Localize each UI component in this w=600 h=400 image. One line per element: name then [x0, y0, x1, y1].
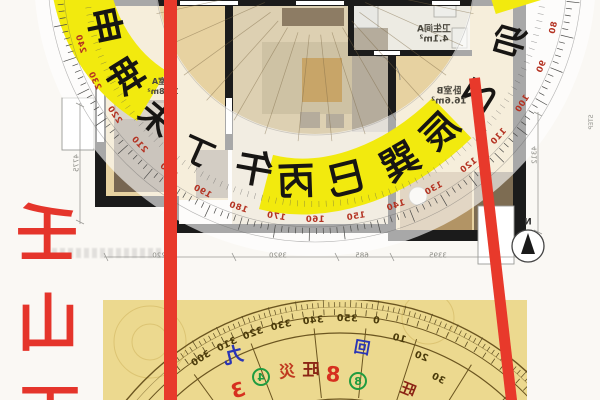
dim-bottom-2: 3920 [269, 253, 287, 260]
dim-bottom-4: 3395 [429, 253, 447, 260]
mountain-char-wu: 午 [232, 147, 276, 191]
protractor-degree-110: 110 [489, 127, 508, 147]
room-area: 16.6m² [431, 97, 467, 107]
protractor-degree-180: 180 [227, 200, 248, 214]
luopan-degree-10: 10 [391, 333, 407, 346]
luopan-degree-20: 20 [413, 350, 430, 364]
luopan-symbol-8: 8 [325, 364, 341, 386]
protractor-degree-190: 190 [191, 184, 212, 200]
luopan-symbol-wang-1: 旺 [303, 363, 320, 380]
protractor-degree-150: 150 [346, 211, 366, 223]
luopan-symbol-3: 3 [228, 378, 247, 400]
direction-char-shan: 山 [17, 293, 79, 355]
mountain-char-chen: 辰 [416, 107, 467, 158]
luopan-degree-30: 30 [430, 372, 447, 387]
protractor-degree-90: 90 [536, 60, 549, 75]
luopan-degree-330: 330 [270, 319, 293, 333]
dim-left: 4775 [74, 154, 81, 172]
room-label-bedroom-b: 卧室B 16.6m² [431, 84, 467, 107]
luopan-degree-320: 320 [241, 326, 264, 342]
protractor-degree-130: 130 [424, 181, 445, 198]
protractor-degree-120: 120 [458, 157, 478, 176]
mountain-char-shen: 申 [81, 3, 126, 48]
luopan-symbol-zai: 災 [278, 363, 296, 381]
mountain-char-kun: 坤 [98, 51, 150, 103]
room-name: 卧室B [431, 84, 467, 97]
protractor-degree-170: 170 [266, 211, 286, 222]
mountain-char-ding: 丁 [177, 131, 219, 173]
luopan-symbol-circled-8: 8 [349, 372, 367, 390]
dim-bottom-3: 685 [355, 253, 368, 260]
mountain-char-bing: 丙 [276, 161, 315, 200]
protractor-degree-80: 80 [549, 20, 560, 34]
protractor-degree-100: 100 [515, 94, 532, 115]
step-label: STEP [589, 115, 595, 130]
luopan-symbol-wang-2: 旺 [398, 380, 418, 400]
mountain-char-mao: 卯 [490, 20, 532, 62]
luopan-degree-350: 350 [336, 314, 358, 324]
mountain-char-xun: 巽 [374, 136, 426, 188]
room-name: 卫生间A [417, 22, 451, 35]
mountain-char-si: 巳 [323, 156, 369, 202]
north-label: N [524, 219, 532, 228]
luopan-degree-0: 0 [372, 316, 380, 326]
room-area: 4.1m² [417, 35, 451, 45]
protractor-degree-160: 160 [305, 216, 324, 225]
direction-char-bing: 丙 [19, 384, 81, 400]
luopan-symbol-circled-4: 4 [252, 368, 270, 386]
protractor-degree-140: 140 [386, 199, 407, 213]
direction-char-ren: 壬 [16, 203, 78, 265]
luopan-symbol-hui: 回 [353, 339, 372, 358]
dim-right: 4312 [532, 146, 539, 164]
luopan-degree-340: 340 [302, 315, 324, 327]
protractor-degree-220: 220 [105, 104, 123, 125]
luopan-degree-300: 300 [189, 349, 212, 369]
fengshui-floorplan-analysis: 申 坤 未 丁 午 丙 巳 巽 辰 乙 卯 卧室A 14.8m² 卧室B 16.… [0, 0, 600, 400]
room-label-bathroom-a: 卫生间A 4.1m² [417, 22, 451, 45]
sitting-direction-line [164, 0, 177, 400]
protractor-degree-210: 210 [129, 135, 148, 155]
